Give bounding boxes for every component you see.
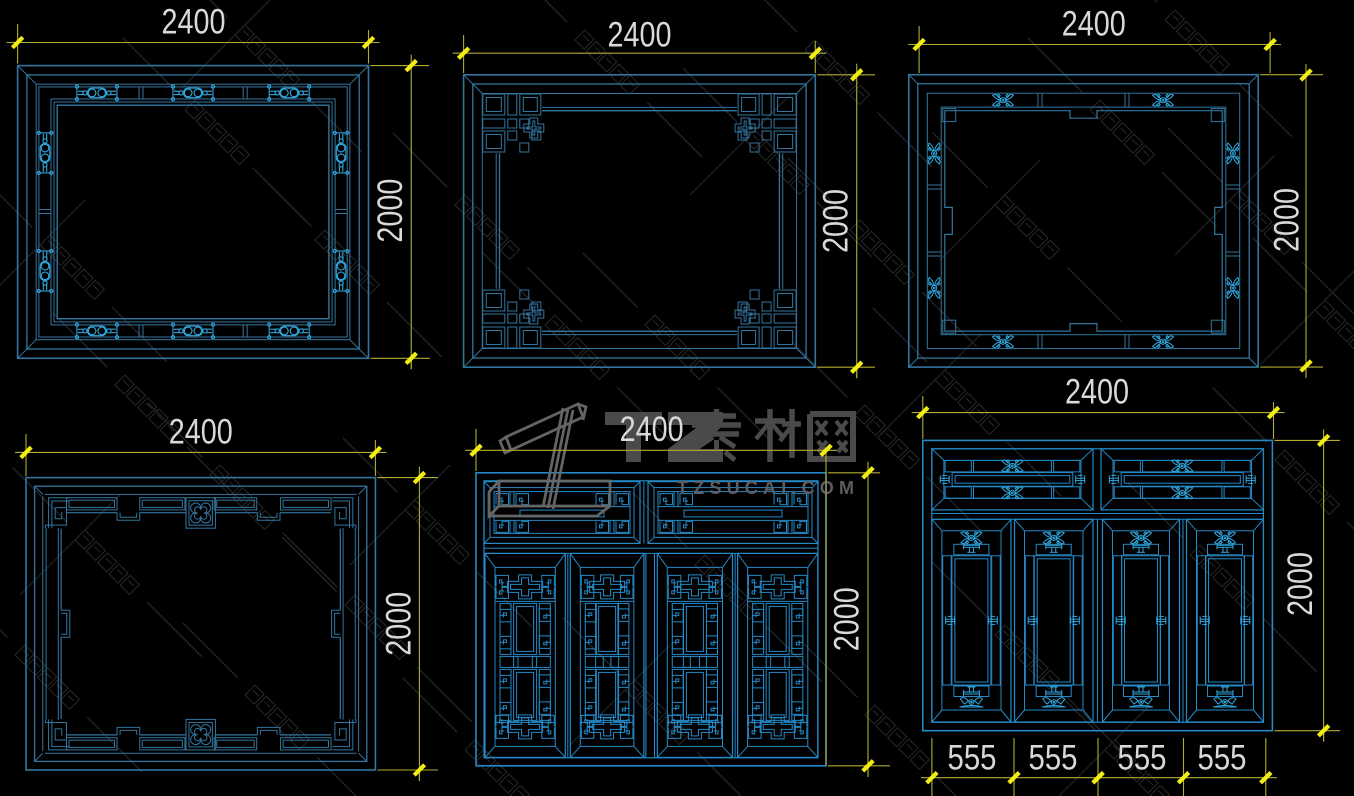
svg-text:2000: 2000 bbox=[1268, 188, 1307, 252]
svg-text:2400: 2400 bbox=[1065, 373, 1129, 412]
svg-text:2400: 2400 bbox=[620, 410, 684, 449]
svg-text:2000: 2000 bbox=[817, 189, 856, 253]
svg-text:2000: 2000 bbox=[380, 592, 419, 656]
svg-text:2400: 2400 bbox=[1062, 5, 1126, 44]
svg-text:555: 555 bbox=[1029, 739, 1078, 778]
svg-text:555: 555 bbox=[1118, 739, 1167, 778]
svg-text:2000: 2000 bbox=[1281, 552, 1320, 616]
svg-text:2400: 2400 bbox=[162, 3, 226, 42]
svg-text:2400: 2400 bbox=[169, 413, 233, 452]
svg-text:2400: 2400 bbox=[608, 16, 672, 55]
svg-text:555: 555 bbox=[1198, 739, 1247, 778]
svg-text:555: 555 bbox=[948, 739, 997, 778]
svg-text:2000: 2000 bbox=[828, 587, 867, 651]
svg-text:TZSUCAI.COM: TZSUCAI.COM bbox=[677, 478, 859, 498]
svg-text:2000: 2000 bbox=[371, 179, 410, 243]
